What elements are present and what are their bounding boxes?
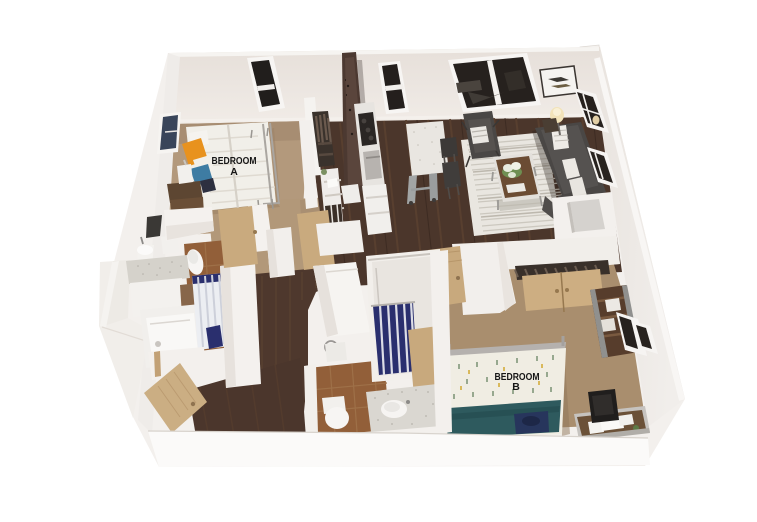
svg-text:A: A — [230, 166, 238, 178]
svg-text:B: B — [512, 381, 520, 393]
